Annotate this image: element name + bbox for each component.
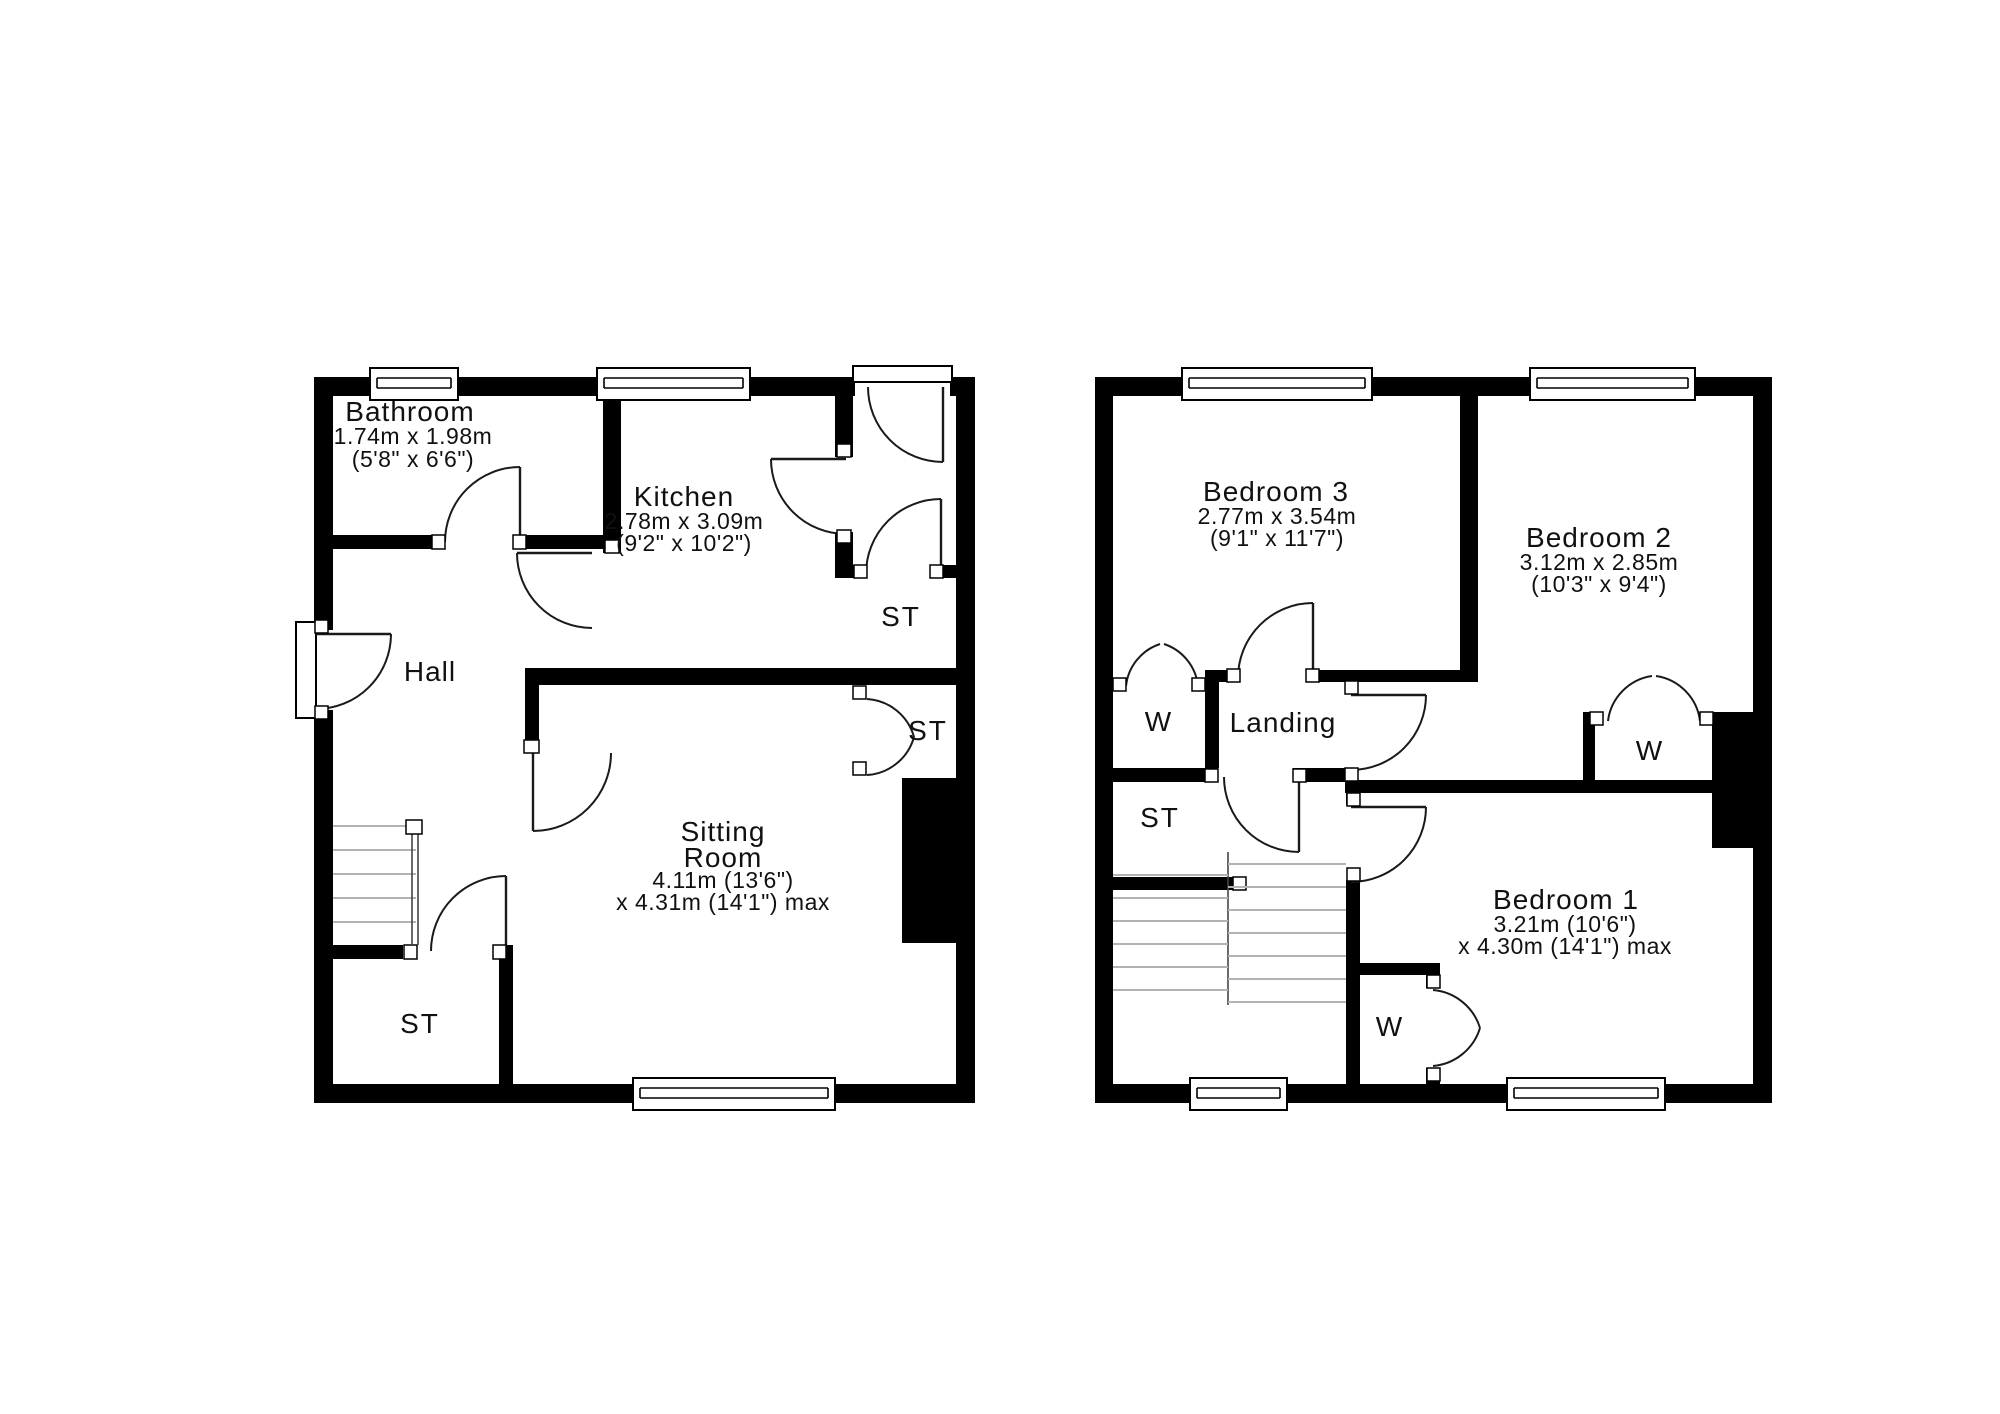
kitchen-lobby-door	[771, 459, 846, 534]
first-floor-labels: Bedroom 3 2.77m x 3.54m (9'1" x 11'7") B…	[1140, 476, 1678, 1042]
bedroom2-dim-imperial-label: (10'3" x 9'4")	[1531, 571, 1667, 597]
first-floor-stairs	[1113, 852, 1346, 1005]
back-door	[868, 387, 943, 462]
first-floor-plan: Bedroom 3 2.77m x 3.54m (9'1" x 11'7") B…	[1095, 368, 1772, 1110]
floorplan-page: Bathroom 1.74m x 1.98m (5'8" x 6'6") Kit…	[0, 0, 2000, 1414]
window-kitchen	[597, 368, 750, 400]
window-sitting-room	[633, 1078, 835, 1110]
sitting-room-dim-label-2: x 4.31m (14'1") max	[616, 889, 830, 915]
bedroom1-dim-label-2: x 4.30m (14'1") max	[1458, 933, 1672, 959]
back-door-threshold	[853, 366, 952, 382]
store-understairs-label: ST	[400, 1008, 440, 1039]
landing-name-label: Landing	[1230, 707, 1337, 738]
sitting-store-double-doors	[867, 699, 914, 775]
bedroom3-wardrobe-doors	[1126, 644, 1198, 686]
bedroom2-door	[1351, 695, 1426, 770]
bedroom3-dim-imperial-label: (9'1" x 11'7")	[1210, 525, 1344, 551]
front-door	[316, 634, 391, 709]
bedroom1-wardrobe-label: W	[1376, 1011, 1404, 1042]
bedroom1-door	[1351, 807, 1426, 882]
bedroom3-wardrobe-label: W	[1145, 706, 1173, 737]
bedroom2-wardrobe-doors	[1608, 676, 1700, 721]
front-door-threshold	[296, 622, 316, 718]
ground-floor-plan: Bathroom 1.74m x 1.98m (5'8" x 6'6") Kit…	[296, 366, 975, 1110]
ground-floor-windows	[296, 366, 952, 1110]
window-bedroom1	[1507, 1078, 1665, 1110]
kitchen-dim-imperial-label: (9'2" x 10'2")	[616, 530, 752, 556]
floorplan-drawing: Bathroom 1.74m x 1.98m (5'8" x 6'6") Kit…	[0, 0, 2000, 1414]
ground-floor-labels: Bathroom 1.74m x 1.98m (5'8" x 6'6") Kit…	[334, 396, 948, 1039]
chimney-breast-first	[1712, 712, 1772, 848]
store-mid-label: ST	[908, 715, 948, 746]
bedroom1-wardrobe-doors	[1433, 990, 1480, 1066]
ground-floor-stairs	[333, 820, 422, 945]
bathroom-door	[445, 467, 520, 542]
bedroom3-door	[1238, 603, 1313, 678]
first-floor-store-door	[1224, 777, 1299, 852]
window-bedroom3	[1182, 368, 1372, 400]
kitchen-door	[517, 553, 592, 628]
understairs-store-door	[431, 876, 506, 951]
window-bedroom2	[1530, 368, 1695, 400]
hall-name-label: Hall	[404, 656, 456, 687]
first-floor-store-label: ST	[1140, 802, 1180, 833]
bedroom2-wardrobe-label: W	[1636, 735, 1664, 766]
bathroom-dim-imperial-label: (5'8" x 6'6")	[352, 446, 474, 472]
sitting-room-door	[533, 753, 611, 831]
lobby-store-door	[866, 499, 941, 574]
window-stairs	[1190, 1078, 1287, 1110]
store-lobby-label: ST	[881, 601, 921, 632]
chimney-breast-ground	[902, 778, 975, 943]
first-floor-walls	[1095, 377, 1772, 1103]
